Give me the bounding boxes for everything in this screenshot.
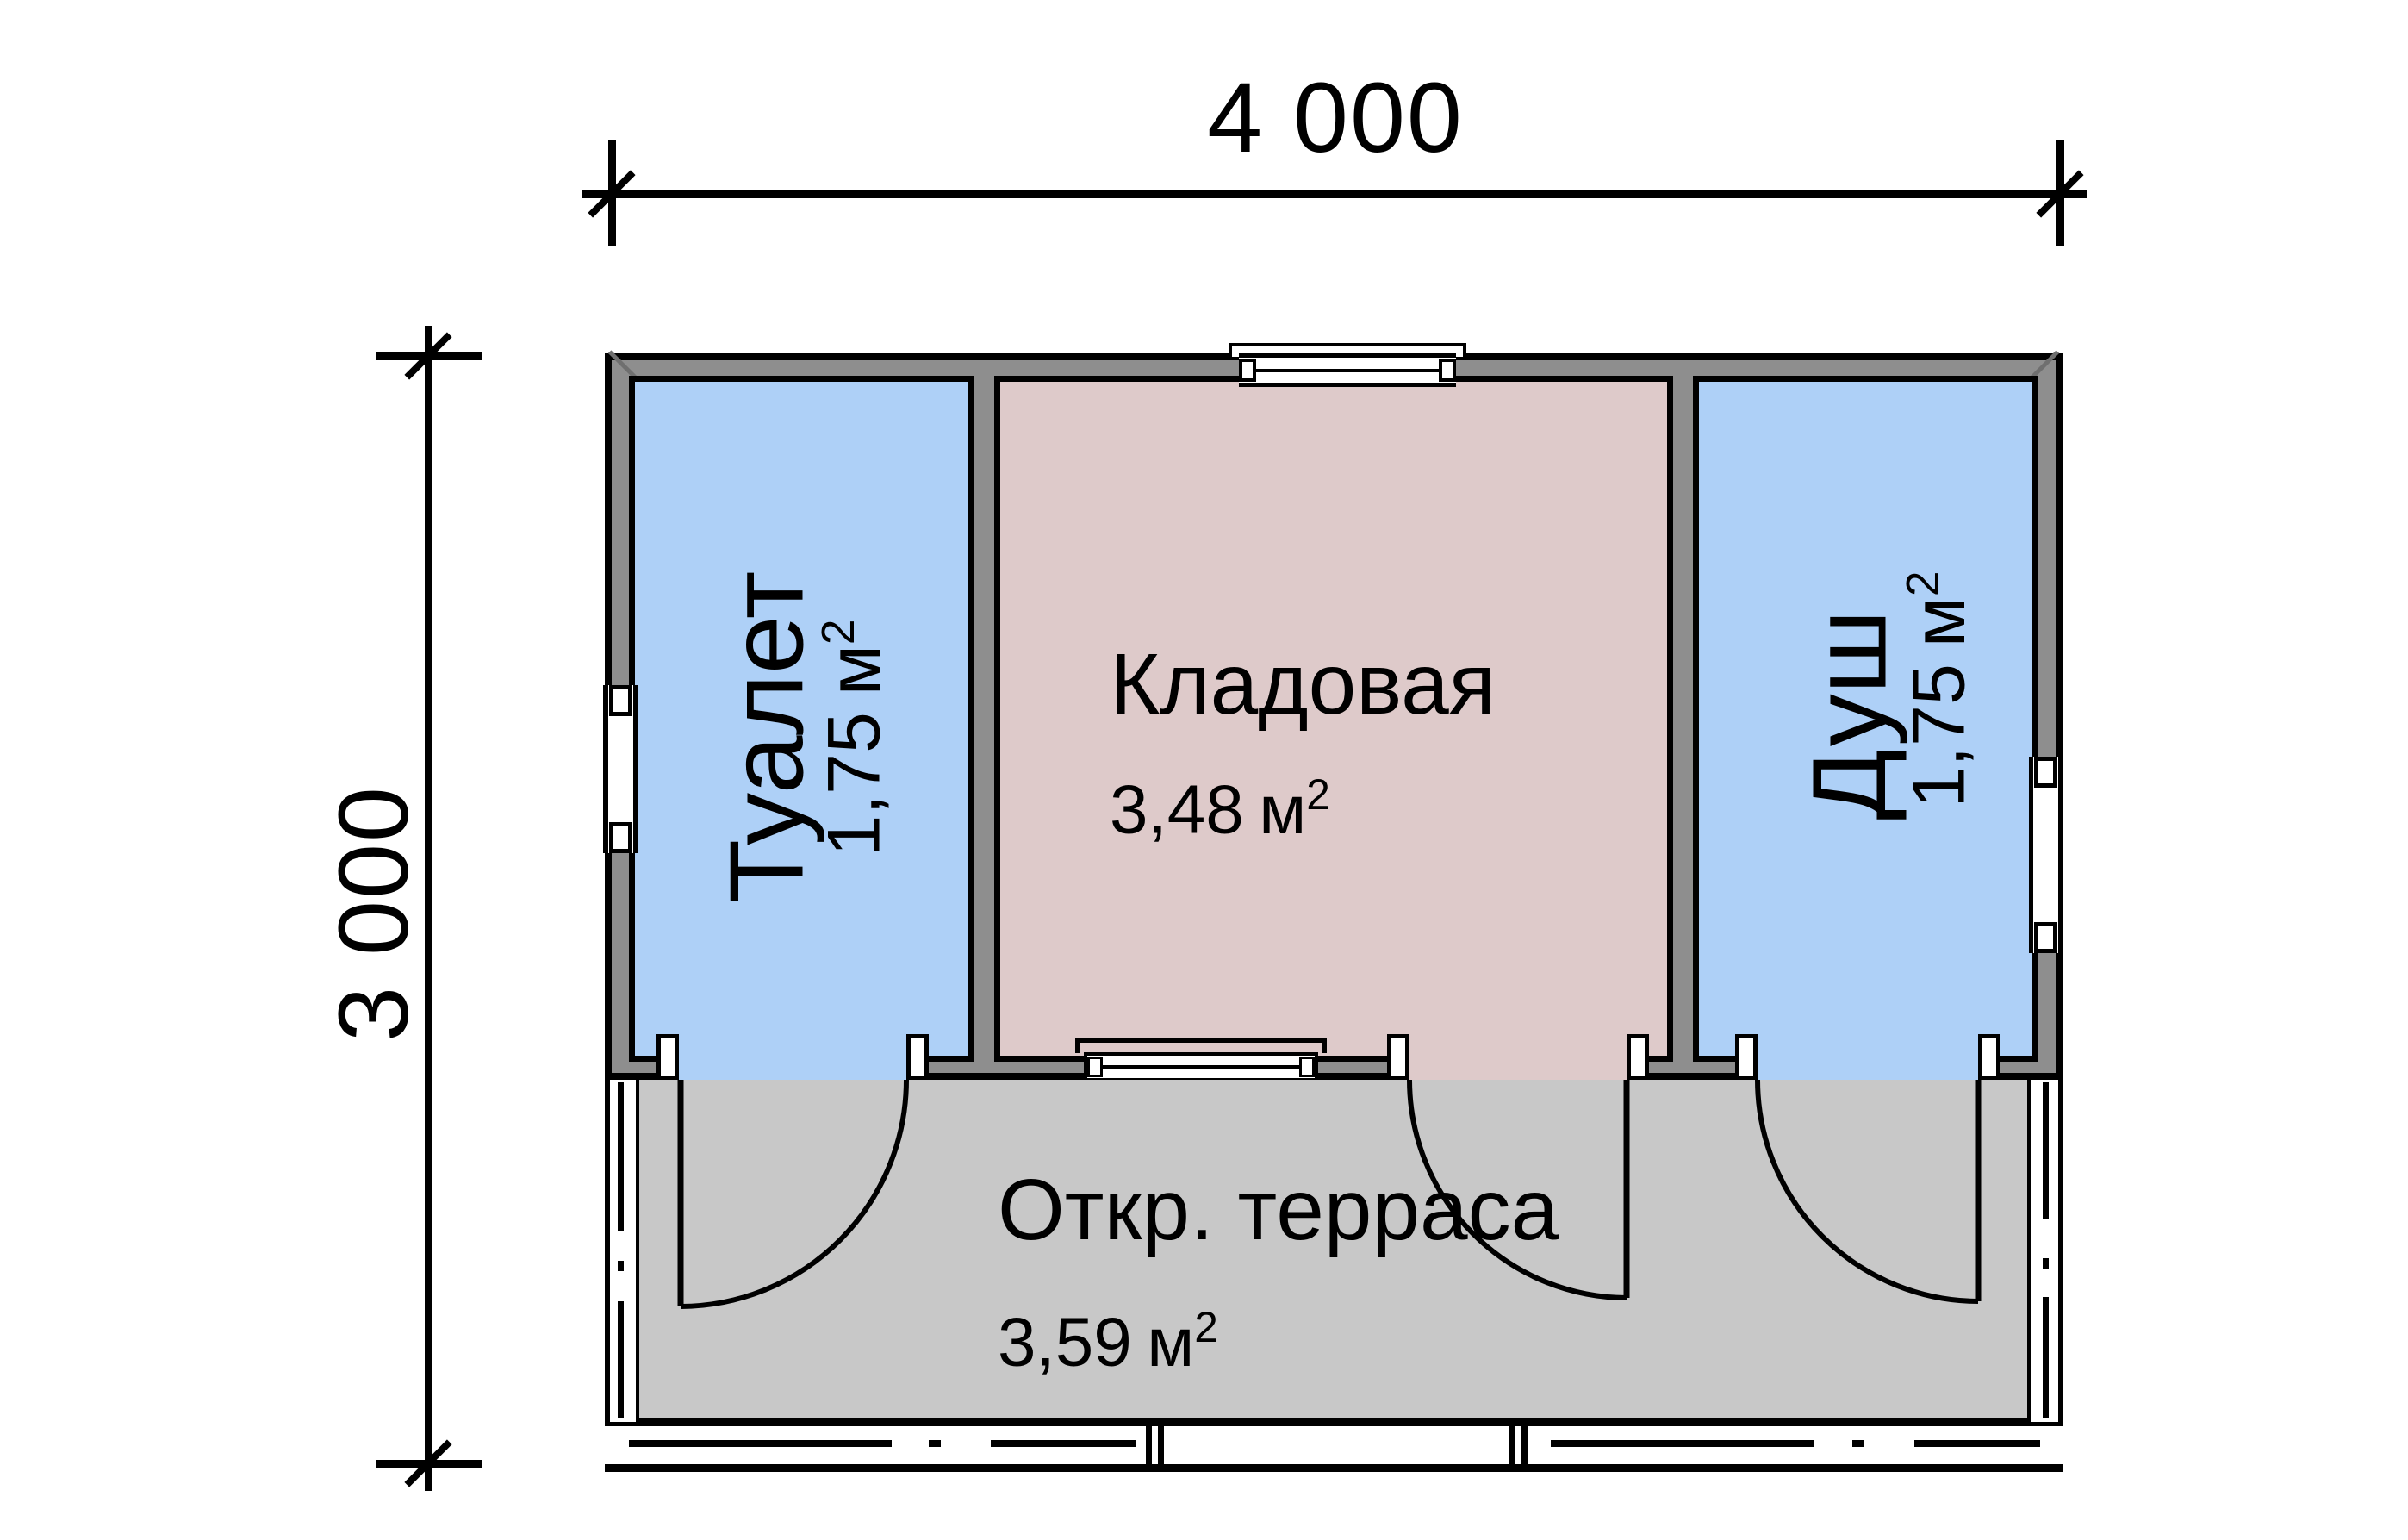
door-jamb (906, 1034, 929, 1080)
window-glass-line (1103, 1065, 1299, 1069)
area-value: 1,75 (813, 712, 896, 856)
railing-right-dot (2043, 1258, 2049, 1269)
window-storage-terrace (1084, 1052, 1318, 1082)
dimension-label-height: 3 000 (325, 655, 428, 1172)
railing-bottom-rail (991, 1440, 1136, 1447)
room-shower-area: 1,75м2 (1901, 496, 1980, 883)
window-frame-cap (609, 822, 632, 853)
railing-bottom (605, 1422, 2063, 1472)
railing-bottom-dot (1852, 1440, 1864, 1447)
railing-bottom-rail (1551, 1440, 1814, 1447)
area-unit: м (1898, 596, 1981, 647)
area-unit-sup: 2 (1898, 570, 1949, 596)
railing-bottom-rail (629, 1440, 892, 1447)
door-opening-storage (1409, 1051, 1627, 1080)
window-frame-cap (2034, 757, 2057, 788)
door-jamb (1735, 1034, 1758, 1080)
area-unit: м (813, 645, 896, 695)
window-frame-cap (1087, 1057, 1103, 1077)
window-frame-cap (1439, 359, 1456, 382)
door-jamb (1387, 1034, 1409, 1080)
area-value: 3,48 (1110, 771, 1244, 848)
room-toilet-label: Туалет (712, 479, 811, 996)
area-unit-sup: 2 (1306, 770, 1330, 819)
room-storage-area: 3,48м2 (1110, 774, 1330, 845)
railing-post (1158, 1424, 1164, 1470)
room-shower-label: Душ (1795, 457, 1894, 974)
area-unit: м (1259, 771, 1306, 848)
room-toilet-area: 1,75м2 (816, 544, 895, 932)
room-terrace-label: Откр. терраса (998, 1165, 1559, 1256)
railing-right-rail (2043, 1297, 2049, 1418)
window-frame-cap (2034, 922, 2057, 953)
window-storage-sill-line (1075, 1038, 1327, 1043)
window-storage-sill-tick (1075, 1038, 1080, 1053)
window-frame-cap (609, 685, 632, 716)
area-unit-sup: 2 (1194, 1303, 1218, 1351)
window-top (1239, 353, 1456, 387)
area-value: 1,75 (1898, 664, 1981, 807)
railing-right-rail (2043, 1082, 2049, 1219)
area-unit: м (1147, 1304, 1194, 1381)
floor-plan-canvas: 4 000 3 000 (0, 0, 2408, 1540)
window-frame-cap (1239, 359, 1256, 382)
area-value: 3,59 (998, 1304, 1132, 1381)
area-unit-sup: 2 (813, 619, 864, 645)
dimension-label-width: 4 000 (991, 69, 1680, 168)
door-opening-toilet (679, 1051, 906, 1080)
room-terrace-area: 3,59м2 (998, 1306, 1218, 1377)
window-frame-cap (1299, 1057, 1315, 1077)
railing-left-rail (618, 1301, 624, 1418)
window-storage-sill-tick (1322, 1038, 1327, 1053)
dimension-line-top (582, 190, 2087, 198)
railing-left-dot (618, 1261, 624, 1271)
window-left (603, 685, 638, 853)
room-storage-label: Кладовая (1110, 639, 1496, 730)
railing-bottom-dot (929, 1440, 941, 1447)
window-glass-line (1254, 369, 1440, 372)
door-jamb (656, 1034, 679, 1080)
railing-bottom-rail (1914, 1440, 2040, 1447)
door-opening-shower (1758, 1051, 1978, 1080)
railing-post (1509, 1424, 1515, 1470)
window-right (2029, 757, 2063, 953)
door-jamb (1978, 1034, 2000, 1080)
railing-left-rail (618, 1082, 624, 1231)
railing-post (1146, 1424, 1152, 1470)
railing-post (1521, 1424, 1528, 1470)
door-jamb (1627, 1034, 1649, 1080)
